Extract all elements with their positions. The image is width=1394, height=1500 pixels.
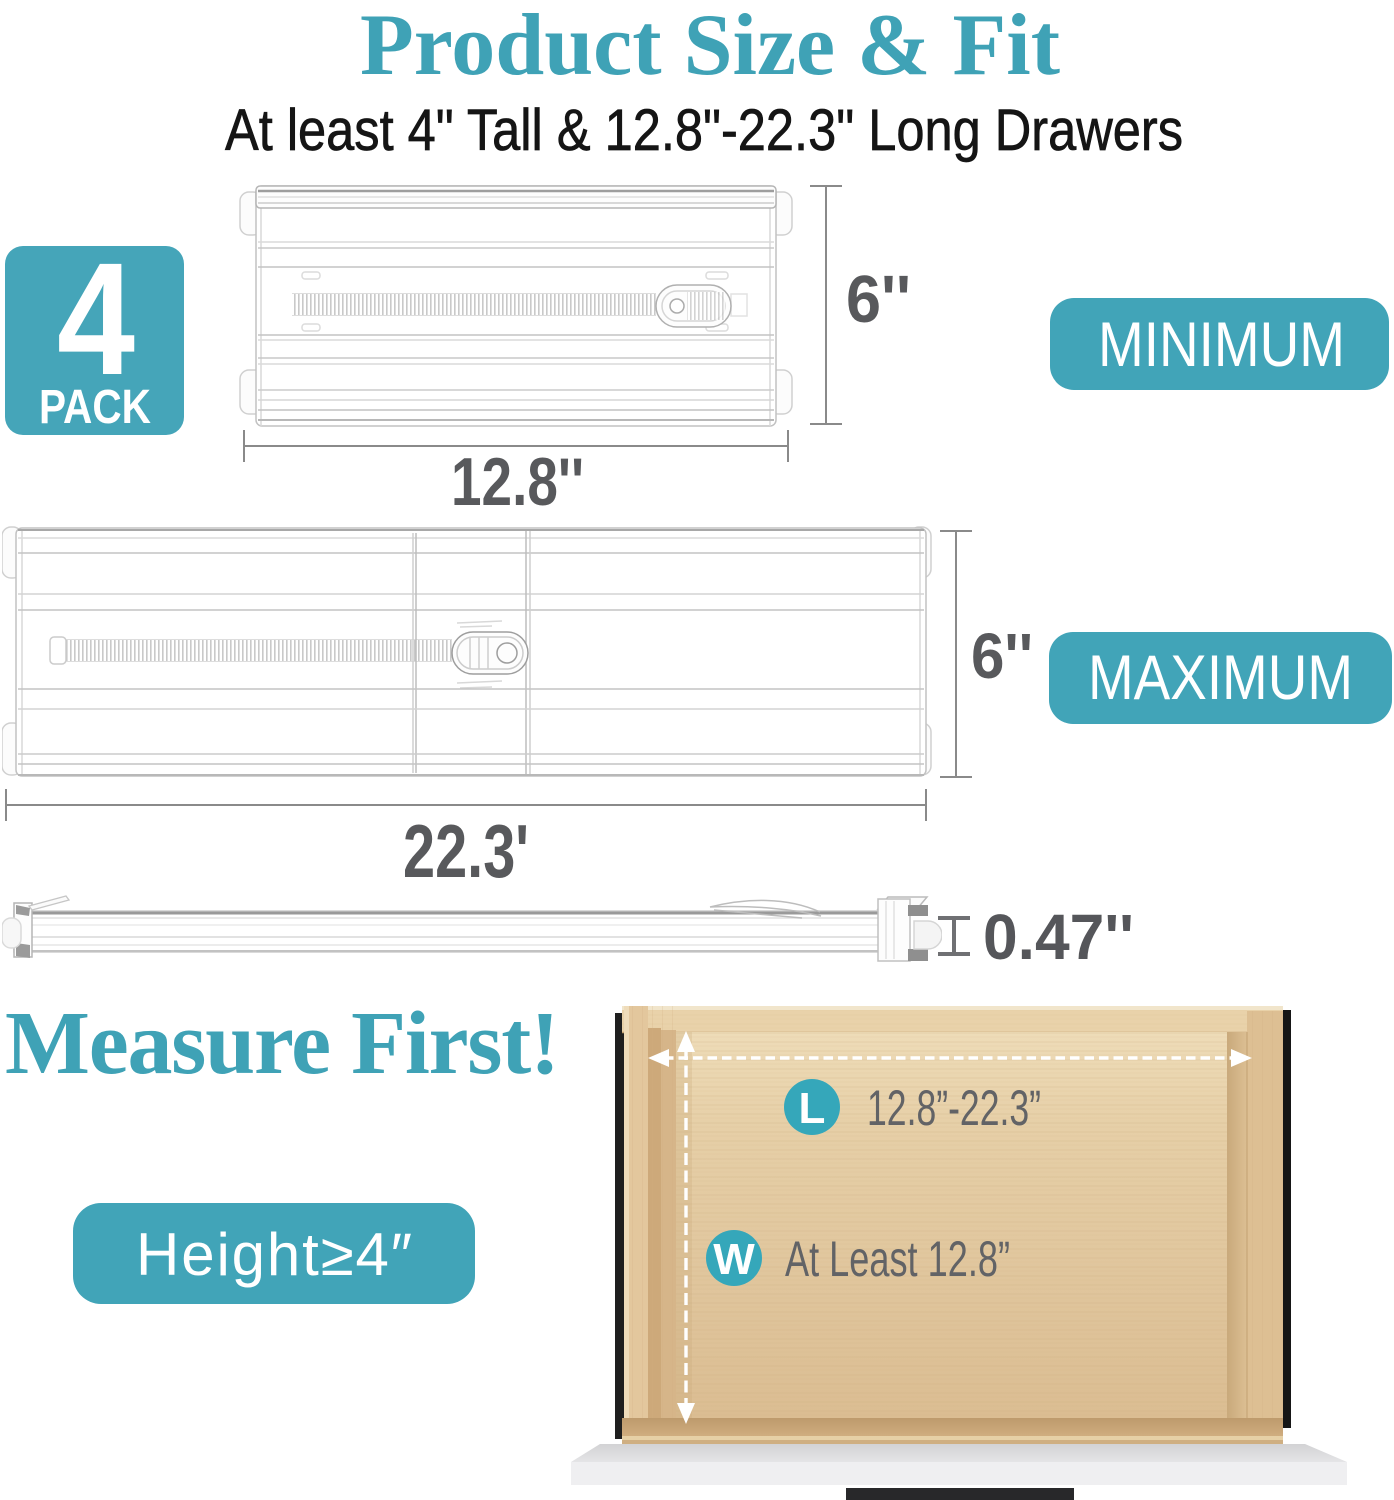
svg-text:12.8'': 12.8''	[451, 445, 584, 520]
svg-text:L: L	[799, 1084, 826, 1133]
svg-text:Product Size & Fit: Product Size & Fit	[360, 0, 1060, 94]
svg-text:12.8”-22.3”: 12.8”-22.3”	[867, 1080, 1041, 1136]
svg-text:Measure First!: Measure First!	[5, 995, 560, 1090]
svg-text:MINIMUM: MINIMUM	[1098, 310, 1345, 380]
svg-text:0.47'': 0.47''	[983, 905, 1134, 973]
svg-text:At Least 12.8”: At Least 12.8”	[785, 1231, 1010, 1287]
svg-text:6'': 6''	[971, 620, 1033, 691]
svg-text:At least 4" Tall & 12.8"-22.3": At least 4" Tall & 12.8"-22.3" Long Draw…	[225, 98, 1183, 163]
svg-text:PACK: PACK	[39, 381, 151, 434]
svg-text:MAXIMUM: MAXIMUM	[1088, 643, 1353, 713]
svg-text:W: W	[713, 1235, 755, 1284]
svg-text:6'': 6''	[846, 262, 911, 335]
svg-text:Height≥4″: Height≥4″	[136, 1221, 412, 1288]
svg-text:22.3': 22.3'	[403, 815, 529, 893]
